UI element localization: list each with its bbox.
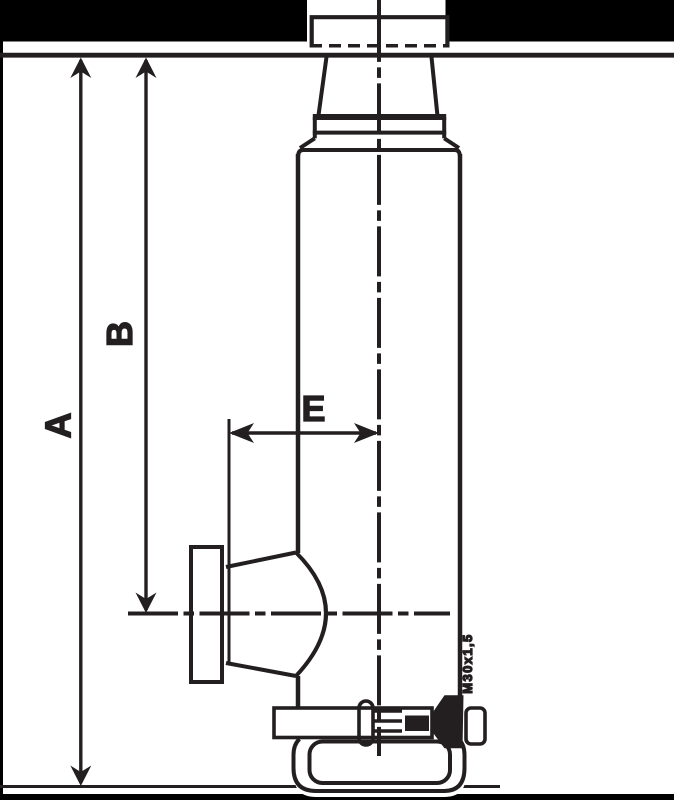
svg-text:A: A — [38, 413, 79, 439]
svg-text:B: B — [99, 321, 140, 347]
svg-text:M30x1,5: M30x1,5 — [460, 633, 475, 693]
svg-text:E: E — [301, 388, 325, 429]
